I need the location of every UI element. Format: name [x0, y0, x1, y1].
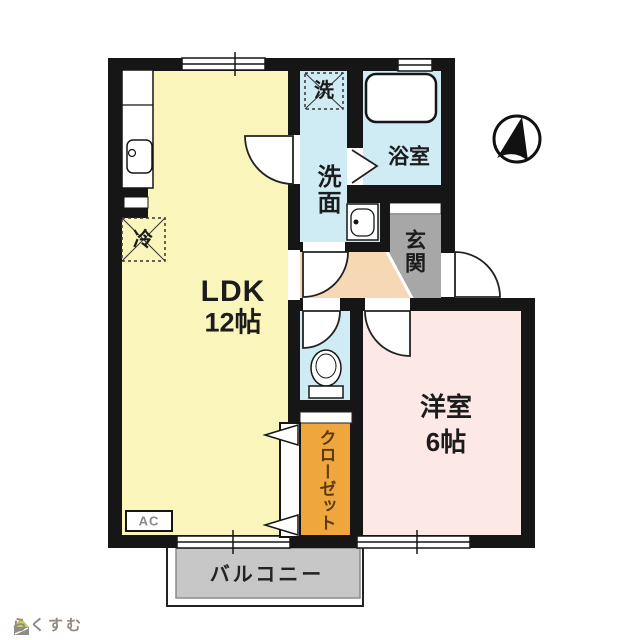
closet-label: クローゼット [318, 429, 335, 531]
site-logo-text: らくすむ [12, 614, 84, 635]
closet-shelf [300, 412, 352, 423]
kitchen-counter-icon [122, 70, 153, 208]
compass-icon [494, 116, 540, 162]
toilet-icon [309, 350, 343, 398]
fridge-label: 冷 [133, 230, 153, 250]
floorplan-page: { "colors": { "ldk": "#f9f5bb", "bedroom… [0, 0, 640, 640]
site-logo: らくすむ [12, 614, 84, 635]
washer-label: 洗 [314, 81, 334, 101]
ldk-size: 12帖 [204, 310, 261, 337]
balcony-label: バルコニー [210, 565, 325, 585]
faucet-icon [129, 150, 136, 157]
bedroom-label: 洋室 [420, 394, 472, 420]
ldk-label: LDK [201, 277, 266, 307]
ac-label: AC [139, 515, 160, 528]
bathroom-label: 浴室 [388, 147, 430, 168]
bedroom-size: 6帖 [426, 429, 466, 455]
washbasin-icon [347, 204, 378, 240]
entrance-step [387, 203, 441, 214]
washroom-label: 洗面 [314, 164, 338, 216]
bathtub-icon [366, 74, 436, 122]
door-arc-entrance [455, 252, 500, 297]
entrance-label: 玄関 [404, 229, 425, 275]
